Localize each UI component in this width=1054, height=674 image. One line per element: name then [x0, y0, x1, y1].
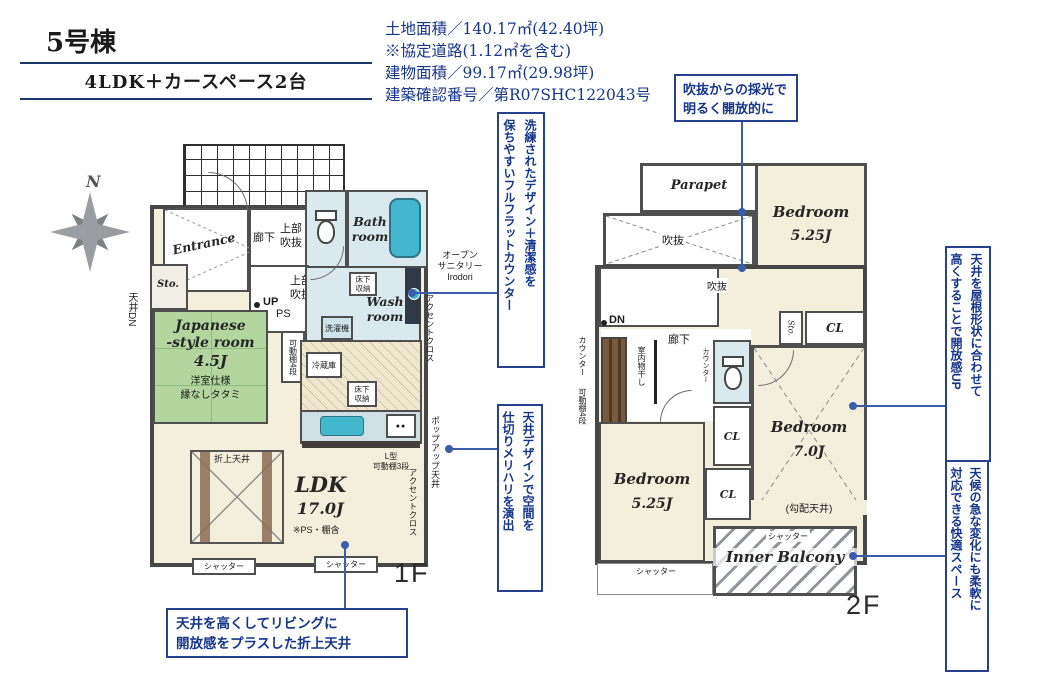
stove-icon: ●● — [386, 414, 416, 438]
callout-ceiling-zone: 天井デザインで空間を 仕切りメリハリを演出 — [497, 404, 543, 592]
up-label: UP — [262, 296, 279, 308]
leader-balcony-dot — [849, 552, 857, 560]
washer-chip: 洗濯機 — [321, 316, 353, 340]
leader-ceiling-zone-dot — [445, 445, 453, 453]
shutter-chip-1f-b: シャッター — [314, 556, 378, 573]
leader-atrium — [741, 122, 743, 272]
popup-ceiling-label: ポップアップ天井 — [429, 416, 442, 488]
dn-label: DN — [609, 314, 625, 326]
bedroom3-name: Bedroom — [599, 470, 705, 488]
leader-counter-dot — [408, 289, 416, 297]
laundry-pole — [654, 340, 657, 404]
cl-label-top: CL — [826, 321, 844, 335]
accent-cloth-label-1: アクセントクロス — [424, 294, 436, 362]
wash-label: Wash room — [362, 294, 408, 324]
site-info-line: ※協定道路(1.12㎡を含む) — [385, 40, 651, 62]
upper-void-label: 上部 吹抜 — [280, 222, 304, 250]
site-info-line: 建物面積／99.17㎡(29.98坪) — [385, 62, 651, 84]
bedroom2-name: Bedroom — [751, 418, 867, 436]
toilet-tank-icon — [315, 210, 337, 221]
coffered-label: 折上天井 — [212, 452, 252, 465]
hall-label: 廊下 — [253, 229, 275, 245]
kitchen-counter-edge — [302, 441, 420, 448]
hall2-label: 廊下 — [668, 331, 690, 347]
movable-shelf4-label-1f: 可動棚4段 — [288, 339, 299, 375]
callout-flat-counter: 洗練されたデザイン＋清潔感を 保ちやすいフルフラットカウンター — [497, 112, 545, 368]
site-info-line: 建築確認番号／第R07SHC122043号 — [385, 84, 651, 106]
sloped-note-label: (勾配天井) — [751, 500, 867, 515]
bedroom1-size: 5.25J — [755, 228, 867, 244]
inner-balcony-label: Inner Balcony — [713, 548, 857, 566]
cl-chip-mid: CL — [713, 406, 751, 466]
movable-shelf4-label-2f: 可動棚4段 — [577, 388, 588, 424]
cl-chip-low: CL — [705, 468, 751, 520]
ldk-size: 17.0J — [297, 499, 344, 518]
stair-end-dot — [601, 320, 607, 326]
callout-atrium: 吹抜からの採光で 明るく開放的に — [674, 74, 798, 122]
bathtub-icon — [389, 198, 421, 258]
building-title: 5号棟 — [46, 22, 116, 59]
shutter-chip-1f-a: シャッター — [192, 558, 256, 575]
open-sanitary-label: オープン サニタリー Irodori — [430, 250, 490, 283]
bath-label: Bath room — [350, 214, 390, 244]
japanese-room-note2: 縁なしタタミ — [153, 386, 268, 401]
void-label-1: 吹抜 — [660, 232, 686, 248]
compass-rose-icon — [50, 182, 136, 274]
leader-coffered — [344, 545, 346, 608]
ceiling-beam-1 — [200, 452, 210, 542]
cl-label-low: CL — [720, 488, 737, 501]
balcony-shutter-label: シャッター — [766, 531, 810, 542]
leader-balcony — [853, 555, 945, 557]
ps-label: PS — [276, 308, 291, 320]
floor1-label: 1F — [394, 558, 430, 589]
header-rule-top — [20, 62, 372, 64]
leader-sloped-dot — [849, 402, 857, 410]
callout-coffered: 天井を高くしてリビングに 開放感をプラスした折上天井 — [166, 608, 408, 658]
bedroom2-size: 7.0J — [751, 444, 867, 460]
ldk-note: ※PS・棚含 — [293, 523, 340, 536]
leader-sloped — [853, 405, 945, 407]
toilet2-tank-icon — [722, 356, 744, 367]
leader-atrium-dot-2 — [738, 264, 746, 272]
leader-coffered-dot — [341, 541, 349, 549]
japanese-room-note1: 洋室仕様 — [153, 372, 268, 387]
counter-label-2f-a: カウンター — [577, 336, 588, 376]
toilet2-icon — [724, 366, 742, 390]
leader-atrium-dot-1 — [738, 208, 746, 216]
fridge-chip: 冷蔵庫 — [306, 352, 342, 378]
leader-counter — [412, 292, 497, 294]
cl-label-mid: CL — [724, 430, 741, 443]
bedroom1-name: Bedroom — [755, 203, 867, 221]
plan-type: 4LDK＋カースペース2台 — [20, 68, 372, 94]
storage-label-1f: Sto. — [157, 279, 179, 290]
toilet-icon — [317, 220, 335, 244]
counter-label-2f-b: カウンター — [700, 348, 710, 383]
callout-sloped-ceiling: 天井を屋根形状に合わせて 高くすることで開放感UP — [945, 246, 991, 462]
site-info: 土地面積／140.17㎡(42.40坪) ※協定道路(1.12㎡を含む) 建物面… — [385, 18, 651, 106]
leader-ceiling-zone — [449, 448, 497, 450]
ldk-name: LDK — [295, 472, 346, 497]
japanese-room-size: 4.5J — [153, 352, 268, 370]
storage-label-2f: Sto. — [787, 320, 796, 336]
void-label-2: 吹抜 — [706, 278, 728, 293]
japanese-room-name: Japanese -style room — [153, 318, 268, 352]
ceiling-down-label: 天井DN — [124, 292, 139, 326]
bedroom3-size: 5.25J — [599, 496, 705, 512]
indoor-drying-label: 室内物干し — [636, 346, 647, 386]
shutter-label-2f-left: シャッター — [636, 566, 676, 577]
stair-start-dot — [254, 302, 260, 308]
ceiling-beam-2 — [262, 452, 272, 542]
floor-storage-chip-1: 床下 収納 — [349, 272, 377, 296]
callout-inner-balcony: 天候の急な変化にも柔軟に 対応できる快適スペース — [945, 460, 989, 672]
bedroom3-room — [599, 422, 705, 562]
cl-chip-top: CL — [805, 311, 865, 345]
floor-storage-chip-2: 床下 収納 — [347, 381, 377, 407]
site-info-line: 土地面積／140.17㎡(42.40坪) — [385, 18, 651, 40]
accent-cloth-label-2: アクセントクロス — [407, 468, 419, 536]
header-rule-bottom — [20, 98, 372, 100]
storage-chip-2f: Sto. — [779, 311, 803, 345]
hall-closet — [601, 337, 627, 425]
floorplan-sheet: 5号棟 4LDK＋カースペース2台 土地面積／140.17㎡(42.40坪) ※… — [0, 0, 1054, 674]
kitchen-sink-icon — [320, 416, 364, 436]
floor2-label: 2F — [846, 590, 882, 621]
